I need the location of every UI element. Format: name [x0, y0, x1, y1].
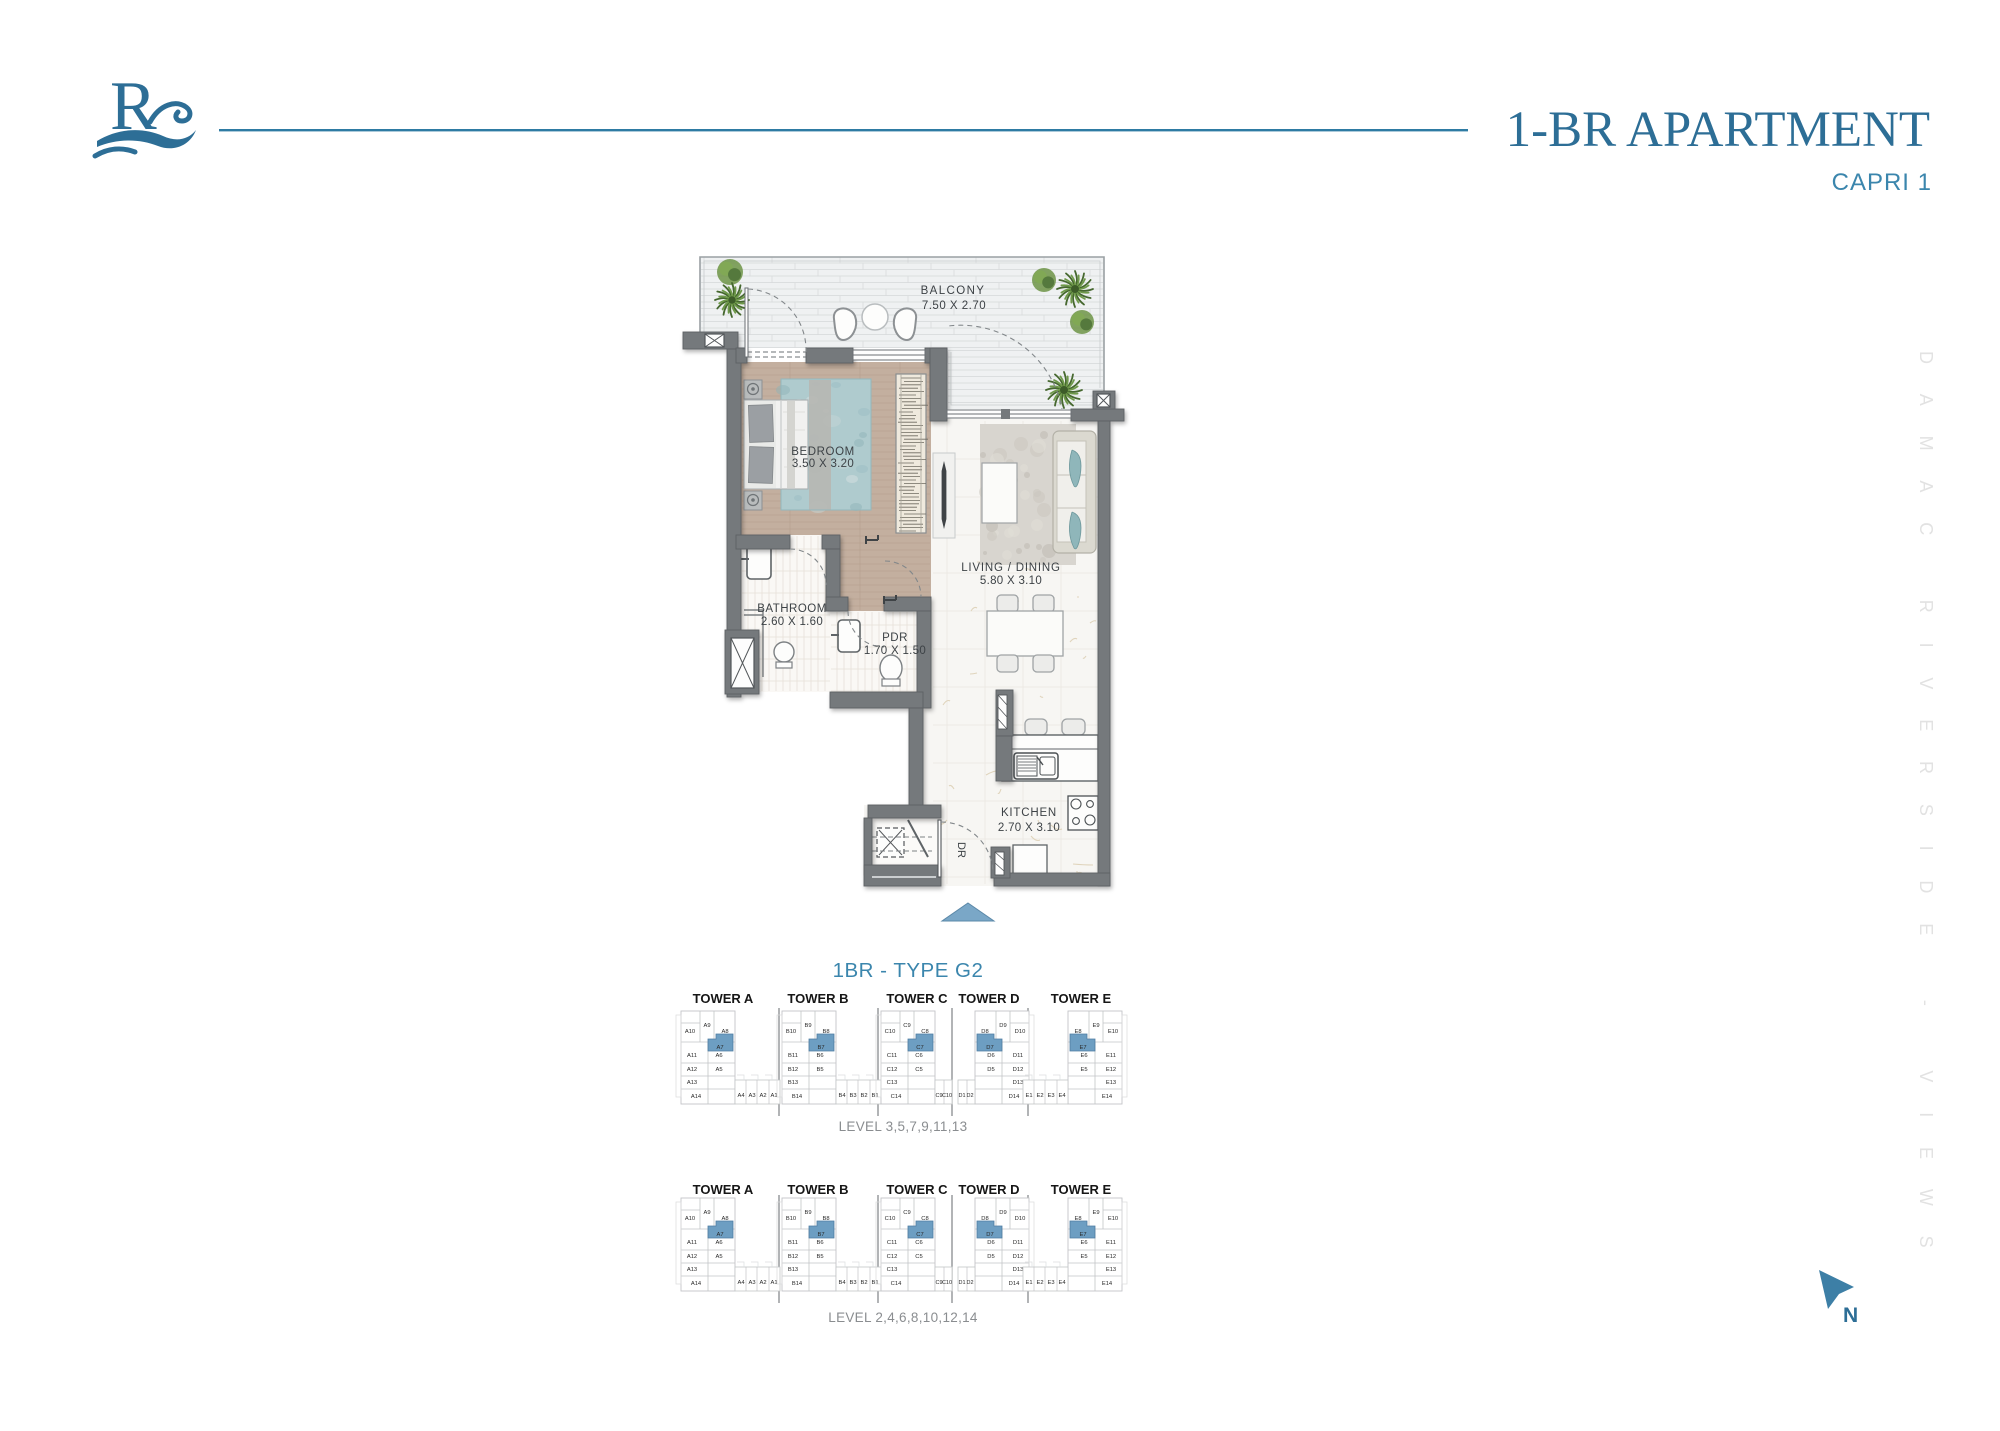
- svg-text:E3: E3: [1047, 1093, 1054, 1099]
- svg-text:A13: A13: [687, 1267, 697, 1273]
- svg-text:C8: C8: [921, 1216, 928, 1222]
- svg-text:D9: D9: [999, 1210, 1006, 1216]
- svg-text:C10: C10: [942, 1280, 952, 1286]
- svg-text:LEVEL 2,4,6,8,10,12,14: LEVEL 2,4,6,8,10,12,14: [828, 1310, 978, 1325]
- svg-text:1.70 X 1.50: 1.70 X 1.50: [864, 645, 926, 657]
- svg-text:B4: B4: [838, 1093, 846, 1099]
- svg-text:A14: A14: [691, 1094, 702, 1100]
- svg-text:D10: D10: [1015, 1029, 1026, 1035]
- svg-text:B12: B12: [788, 1067, 798, 1073]
- svg-text:TOWER C: TOWER C: [886, 991, 948, 1006]
- svg-text:A7: A7: [716, 1045, 723, 1051]
- svg-text:C12: C12: [887, 1254, 898, 1260]
- svg-text:E7: E7: [1079, 1045, 1086, 1051]
- svg-text:N: N: [1843, 1304, 1858, 1327]
- svg-text:C10: C10: [885, 1216, 896, 1222]
- svg-text:E12: E12: [1106, 1254, 1116, 1260]
- svg-text:B2: B2: [860, 1093, 867, 1099]
- svg-text:E6: E6: [1080, 1240, 1087, 1246]
- svg-text:C7: C7: [916, 1045, 923, 1051]
- svg-text:1-BR APARTMENT: 1-BR APARTMENT: [1506, 102, 1930, 158]
- svg-text:B3: B3: [849, 1093, 856, 1099]
- svg-text:B13: B13: [788, 1080, 798, 1086]
- svg-text:C9: C9: [903, 1210, 910, 1216]
- svg-text:E1: E1: [1025, 1280, 1032, 1286]
- svg-text:C9: C9: [903, 1023, 910, 1029]
- svg-text:A1: A1: [770, 1093, 777, 1099]
- svg-text:B14: B14: [792, 1281, 803, 1287]
- svg-text:D1: D1: [958, 1280, 965, 1286]
- svg-text:C11: C11: [887, 1240, 897, 1246]
- svg-text:D9: D9: [999, 1023, 1006, 1029]
- svg-text:B13: B13: [788, 1267, 798, 1273]
- svg-text:E1: E1: [1025, 1093, 1032, 1099]
- svg-text:D14: D14: [1009, 1094, 1020, 1100]
- svg-text:A11: A11: [687, 1053, 697, 1059]
- svg-text:B1: B1: [871, 1093, 878, 1099]
- svg-text:A12: A12: [687, 1254, 697, 1260]
- svg-text:D1: D1: [958, 1093, 965, 1099]
- svg-text:A2: A2: [759, 1093, 766, 1099]
- svg-text:B6: B6: [816, 1053, 823, 1059]
- svg-text:C14: C14: [891, 1281, 902, 1287]
- svg-text:E3: E3: [1047, 1280, 1054, 1286]
- svg-text:D14: D14: [1009, 1281, 1020, 1287]
- svg-text:C5: C5: [915, 1067, 922, 1073]
- svg-text:A4: A4: [737, 1093, 745, 1099]
- svg-text:A10: A10: [685, 1216, 695, 1222]
- svg-text:E14: E14: [1102, 1281, 1113, 1287]
- svg-text:C13: C13: [887, 1080, 898, 1086]
- svg-text:C8: C8: [921, 1029, 928, 1035]
- svg-text:B14: B14: [792, 1094, 803, 1100]
- svg-text:D10: D10: [1015, 1216, 1026, 1222]
- svg-text:E9: E9: [1092, 1210, 1099, 1216]
- svg-text:E9: E9: [1092, 1023, 1099, 1029]
- svg-text:TOWER D: TOWER D: [958, 991, 1019, 1006]
- svg-text:A3: A3: [748, 1280, 755, 1286]
- svg-text:TOWER D: TOWER D: [958, 1182, 1019, 1197]
- svg-text:PDR: PDR: [882, 632, 908, 644]
- svg-text:D12: D12: [1013, 1067, 1024, 1073]
- svg-text:LEVEL 3,5,7,9,11,13: LEVEL 3,5,7,9,11,13: [839, 1119, 968, 1134]
- svg-text:BATHROOM: BATHROOM: [757, 603, 827, 615]
- svg-text:E10: E10: [1108, 1216, 1118, 1222]
- svg-text:TOWER A: TOWER A: [693, 991, 754, 1006]
- svg-text:B8: B8: [822, 1216, 829, 1222]
- svg-text:TOWER B: TOWER B: [787, 991, 848, 1006]
- svg-text:2.60 X 1.60: 2.60 X 1.60: [761, 616, 823, 628]
- svg-text:D11: D11: [1013, 1240, 1023, 1246]
- svg-text:E5: E5: [1080, 1254, 1087, 1260]
- svg-text:E11: E11: [1106, 1240, 1116, 1246]
- svg-text:E14: E14: [1102, 1094, 1113, 1100]
- svg-text:DAMAC RIVERSIDE - VIEWS: DAMAC RIVERSIDE - VIEWS: [1916, 351, 1936, 1277]
- svg-text:A12: A12: [687, 1067, 697, 1073]
- svg-text:B10: B10: [786, 1216, 796, 1222]
- svg-text:D5: D5: [987, 1254, 994, 1260]
- svg-text:D11: D11: [1013, 1053, 1023, 1059]
- svg-text:E13: E13: [1106, 1267, 1116, 1273]
- svg-text:A2: A2: [759, 1280, 766, 1286]
- svg-text:TOWER E: TOWER E: [1051, 991, 1112, 1006]
- svg-text:E4: E4: [1058, 1093, 1066, 1099]
- svg-text:3.50 X 3.20: 3.50 X 3.20: [792, 458, 854, 470]
- svg-text:E10: E10: [1108, 1029, 1118, 1035]
- svg-text:B12: B12: [788, 1254, 798, 1260]
- svg-text:D12: D12: [1013, 1254, 1024, 1260]
- svg-text:C14: C14: [891, 1094, 902, 1100]
- svg-text:A5: A5: [715, 1254, 722, 1260]
- svg-text:CAPRI 1: CAPRI 1: [1832, 169, 1932, 196]
- svg-text:1BR - TYPE G2: 1BR - TYPE G2: [833, 959, 984, 982]
- svg-text:B5: B5: [816, 1067, 823, 1073]
- svg-text:TOWER C: TOWER C: [886, 1182, 948, 1197]
- svg-text:D13: D13: [1013, 1080, 1024, 1086]
- svg-text:B9: B9: [804, 1023, 811, 1029]
- svg-text:D7: D7: [986, 1232, 993, 1238]
- svg-text:D5: D5: [987, 1067, 994, 1073]
- svg-text:E4: E4: [1058, 1280, 1066, 1286]
- svg-text:E12: E12: [1106, 1067, 1116, 1073]
- svg-text:TOWER E: TOWER E: [1051, 1182, 1112, 1197]
- svg-text:B6: B6: [816, 1240, 823, 1246]
- svg-text:C5: C5: [915, 1254, 922, 1260]
- svg-text:C6: C6: [915, 1240, 922, 1246]
- svg-text:E11: E11: [1106, 1053, 1116, 1059]
- svg-text:A6: A6: [715, 1240, 722, 1246]
- svg-text:B10: B10: [786, 1029, 796, 1035]
- svg-text:A10: A10: [685, 1029, 695, 1035]
- svg-text:E2: E2: [1036, 1093, 1043, 1099]
- svg-text:B2: B2: [860, 1280, 867, 1286]
- svg-text:C6: C6: [915, 1053, 922, 1059]
- svg-text:B8: B8: [822, 1029, 829, 1035]
- svg-text:D8: D8: [981, 1216, 988, 1222]
- svg-text:5.80 X 3.10: 5.80 X 3.10: [980, 575, 1042, 587]
- svg-text:DR: DR: [955, 842, 967, 858]
- svg-text:A5: A5: [715, 1067, 722, 1073]
- svg-text:A7: A7: [716, 1232, 723, 1238]
- svg-text:B7: B7: [817, 1045, 824, 1051]
- svg-text:A13: A13: [687, 1080, 697, 1086]
- svg-text:E7: E7: [1079, 1232, 1086, 1238]
- svg-text:D8: D8: [981, 1029, 988, 1035]
- svg-text:C10: C10: [942, 1093, 952, 1099]
- svg-text:B11: B11: [788, 1053, 798, 1059]
- svg-text:2.70 X 3.10: 2.70 X 3.10: [998, 822, 1060, 834]
- svg-text:KITCHEN: KITCHEN: [1001, 807, 1057, 819]
- svg-text:7.50 X 2.70: 7.50 X 2.70: [922, 300, 986, 312]
- svg-text:BALCONY: BALCONY: [921, 285, 986, 297]
- svg-text:A14: A14: [691, 1281, 702, 1287]
- svg-text:A9: A9: [703, 1210, 710, 1216]
- svg-text:D7: D7: [986, 1045, 993, 1051]
- svg-text:B9: B9: [804, 1210, 811, 1216]
- svg-text:B11: B11: [788, 1240, 798, 1246]
- svg-text:C11: C11: [887, 1053, 897, 1059]
- svg-text:A9: A9: [703, 1023, 710, 1029]
- svg-text:A6: A6: [715, 1053, 722, 1059]
- svg-text:E13: E13: [1106, 1080, 1116, 1086]
- svg-text:C13: C13: [887, 1267, 898, 1273]
- svg-text:A4: A4: [737, 1280, 745, 1286]
- svg-text:A1: A1: [770, 1280, 777, 1286]
- svg-text:A3: A3: [748, 1093, 755, 1099]
- svg-text:TOWER B: TOWER B: [787, 1182, 848, 1197]
- svg-text:A8: A8: [721, 1029, 728, 1035]
- svg-text:E5: E5: [1080, 1067, 1087, 1073]
- svg-text:E2: E2: [1036, 1280, 1043, 1286]
- svg-text:E6: E6: [1080, 1053, 1087, 1059]
- svg-text:LIVING / DINING: LIVING / DINING: [961, 562, 1061, 574]
- svg-text:D2: D2: [966, 1280, 973, 1286]
- svg-text:C7: C7: [916, 1232, 923, 1238]
- svg-text:BEDROOM: BEDROOM: [791, 446, 855, 458]
- svg-text:D2: D2: [966, 1093, 973, 1099]
- svg-text:B1: B1: [871, 1280, 878, 1286]
- svg-text:D13: D13: [1013, 1267, 1024, 1273]
- svg-text:C10: C10: [885, 1029, 896, 1035]
- svg-text:B5: B5: [816, 1254, 823, 1260]
- svg-text:E8: E8: [1074, 1216, 1081, 1222]
- svg-text:C12: C12: [887, 1067, 898, 1073]
- svg-text:B7: B7: [817, 1232, 824, 1238]
- svg-text:D6: D6: [987, 1053, 994, 1059]
- svg-text:B4: B4: [838, 1280, 846, 1286]
- svg-text:D6: D6: [987, 1240, 994, 1246]
- svg-text:B3: B3: [849, 1280, 856, 1286]
- svg-text:A8: A8: [721, 1216, 728, 1222]
- svg-text:E8: E8: [1074, 1029, 1081, 1035]
- svg-text:A11: A11: [687, 1240, 697, 1246]
- svg-text:TOWER A: TOWER A: [693, 1182, 754, 1197]
